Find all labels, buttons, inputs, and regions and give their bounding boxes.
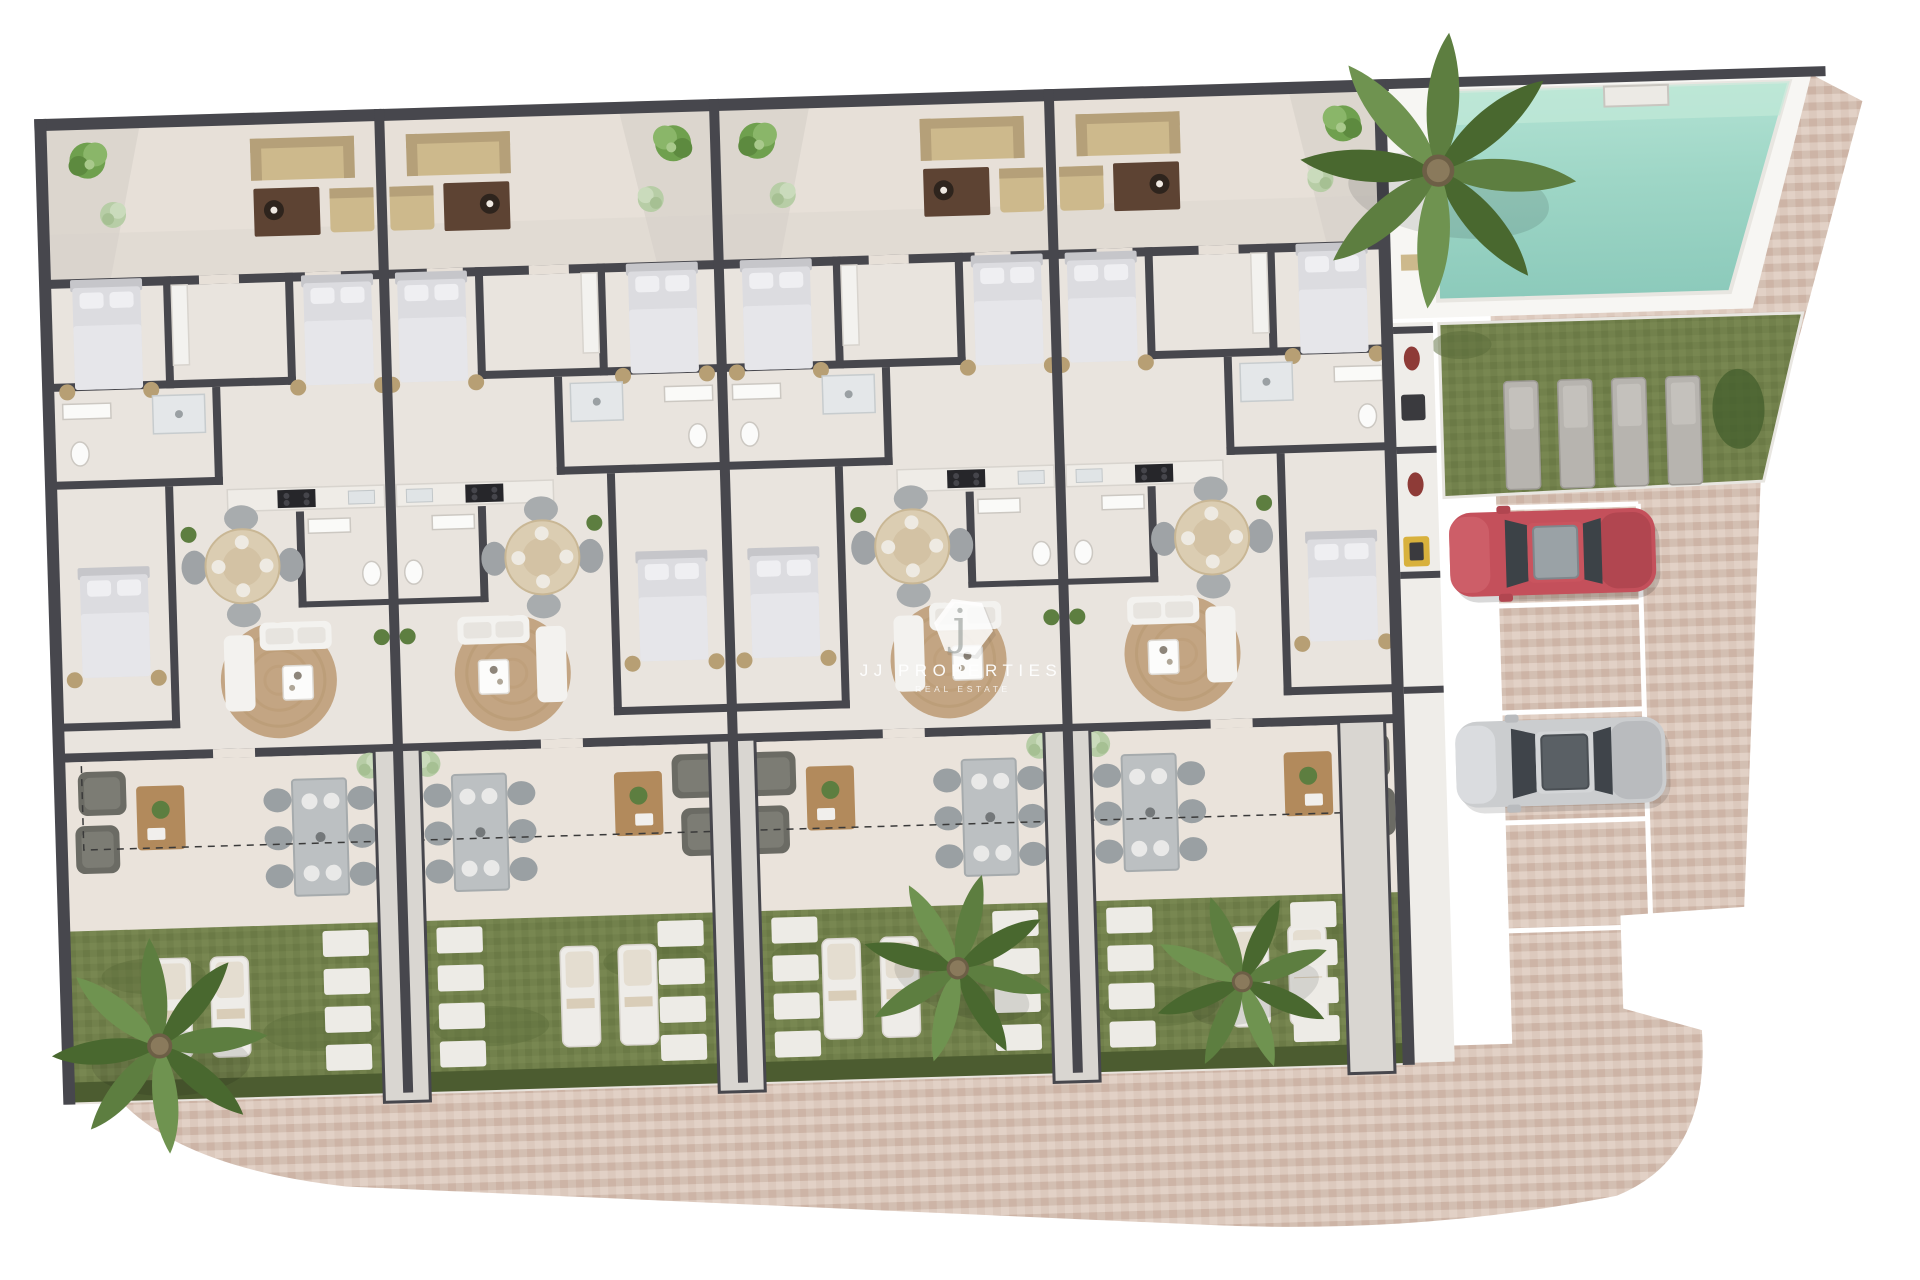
car-silver (1454, 710, 1671, 814)
brand-tagline: REAL ESTATE (915, 684, 1011, 694)
windshield (1505, 519, 1529, 588)
car-red (1448, 501, 1661, 603)
side-mirror (1504, 714, 1518, 722)
side-mirror (1499, 594, 1513, 602)
pool-steps (1604, 85, 1669, 107)
brand-name: JJ PROPERTIES (860, 661, 1063, 680)
deck-side-table (1401, 254, 1419, 271)
side-mirror (1507, 804, 1521, 812)
windshield (1511, 728, 1537, 799)
floor-plan-render: j JJ PROPERTIES REAL ESTATE (0, 0, 1920, 1280)
entry-path (1339, 720, 1395, 1073)
pool-lounger (1504, 381, 1541, 490)
side-mirror (1496, 506, 1510, 514)
site-plan-svg: j JJ PROPERTIES REAL ESTATE (0, 0, 1920, 1280)
pool-lounger (1666, 376, 1703, 485)
rear-window (1593, 727, 1613, 796)
sunroof (1541, 734, 1589, 789)
bbq (1401, 394, 1426, 421)
sunroof (1533, 526, 1579, 579)
rear-window (1583, 518, 1603, 585)
pool-lounger (1612, 378, 1649, 487)
pool-lounger (1558, 379, 1595, 488)
storage-item (1409, 542, 1424, 560)
